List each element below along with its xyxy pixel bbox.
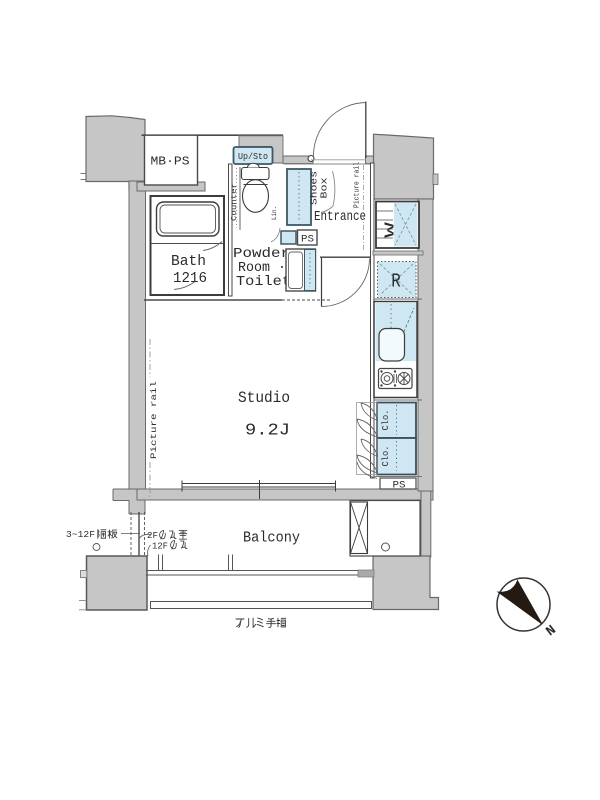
svg-text:Bath: Bath <box>171 253 206 270</box>
svg-text:Clo.: Clo. <box>381 410 391 431</box>
svg-text:9.2J: 9.2J <box>245 421 290 440</box>
svg-text:Balcony: Balcony <box>243 531 300 547</box>
svg-text:Room ·: Room · <box>238 261 286 276</box>
svg-text:Counter: Counter <box>231 183 239 221</box>
svg-text:Box: Box <box>320 178 330 199</box>
svg-text:Up/Sto: Up/Sto <box>238 152 268 162</box>
svg-text:Powder: Powder <box>233 247 290 262</box>
svg-text:R: R <box>391 271 401 293</box>
svg-text:12F: 12F <box>152 542 168 552</box>
svg-text:Picture rail: Picture rail <box>354 162 362 208</box>
svg-text:Shoes: Shoes <box>310 171 320 205</box>
svg-text:Toilet: Toilet <box>236 275 291 290</box>
svg-text:3~12F: 3~12F <box>66 530 95 540</box>
svg-text:Lin.: Lin. <box>271 206 278 220</box>
svg-text:W: W <box>384 221 399 238</box>
svg-text:Clo.: Clo. <box>381 446 391 467</box>
svg-text:PS: PS <box>393 481 406 492</box>
svg-text:1216: 1216 <box>173 270 207 287</box>
svg-text:Entrance: Entrance <box>314 210 366 225</box>
svg-text:PS: PS <box>301 234 314 246</box>
svg-text:Picture rail: Picture rail <box>149 381 159 459</box>
svg-text:MB·PS: MB·PS <box>151 156 190 169</box>
svg-text:2F: 2F <box>147 531 158 541</box>
svg-text:Studio: Studio <box>238 389 290 407</box>
